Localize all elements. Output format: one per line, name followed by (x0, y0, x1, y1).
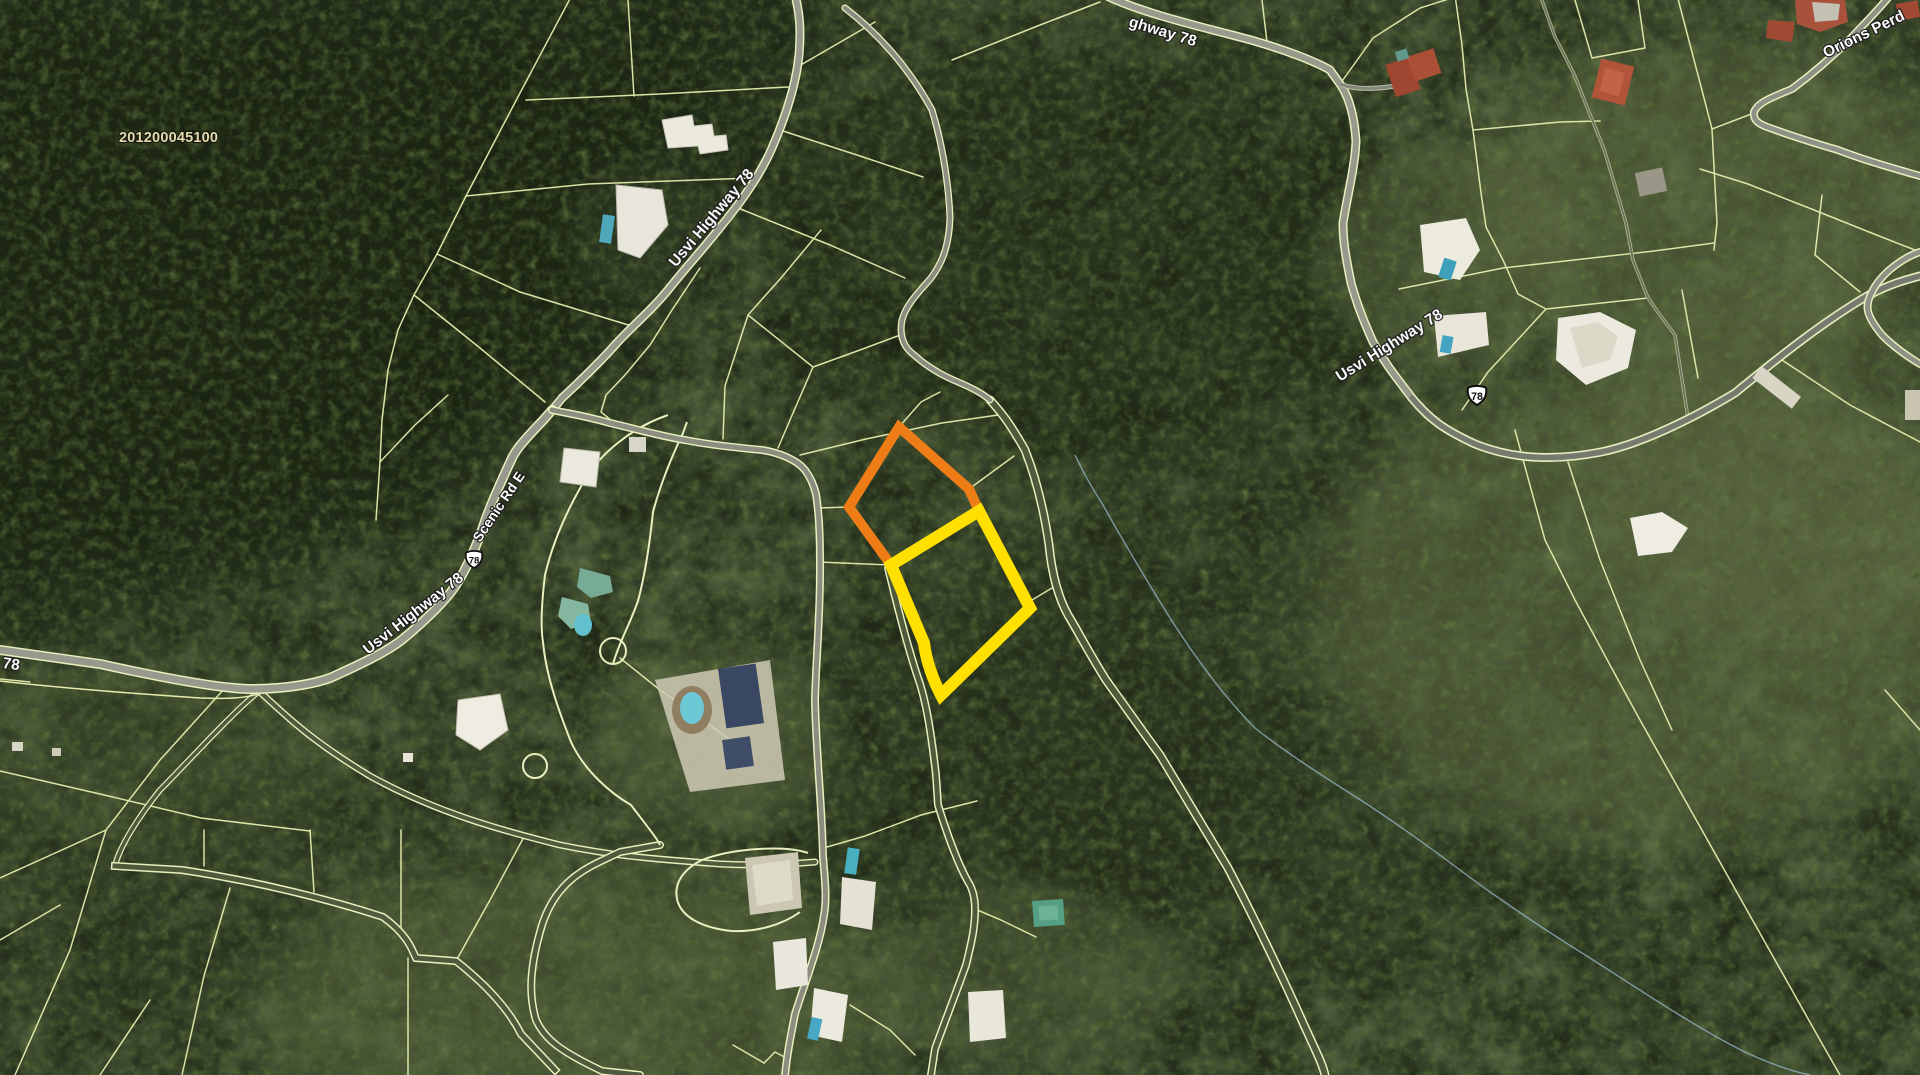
svg-text:201200045100: 201200045100 (119, 130, 218, 146)
svg-text:78: 78 (469, 556, 480, 567)
svg-text:78: 78 (1471, 391, 1483, 403)
svg-text:78: 78 (1, 655, 21, 674)
